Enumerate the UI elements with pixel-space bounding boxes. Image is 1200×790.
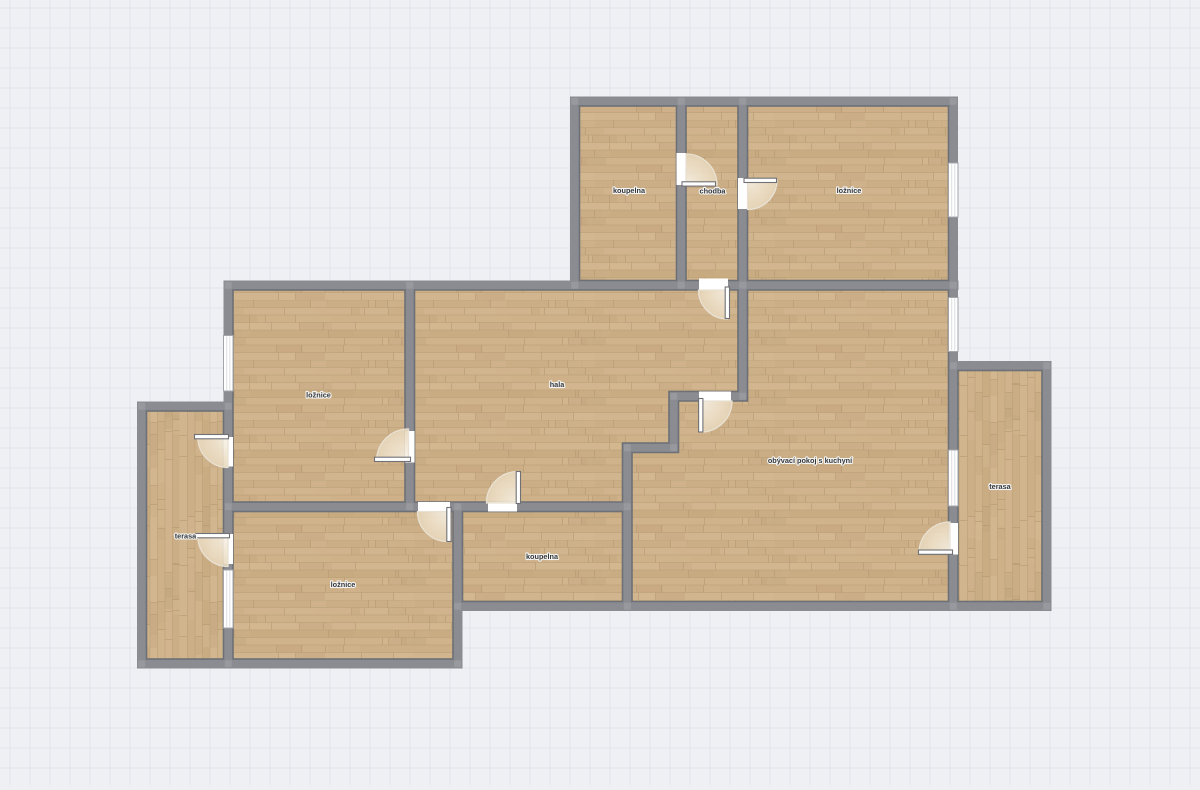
svg-text:koupelna: koupelna bbox=[526, 552, 559, 561]
svg-text:ložnice: ložnice bbox=[331, 580, 356, 589]
svg-text:koupelna: koupelna bbox=[613, 186, 646, 195]
svg-text:ložnice: ložnice bbox=[306, 391, 331, 400]
svg-text:hala: hala bbox=[550, 380, 566, 389]
svg-text:terasa: terasa bbox=[989, 482, 1011, 491]
svg-text:terasa: terasa bbox=[175, 532, 197, 541]
svg-text:ložnice: ložnice bbox=[837, 186, 862, 195]
svg-text:chodba: chodba bbox=[700, 187, 727, 196]
svg-text:obývací pokoj s kuchyní: obývací pokoj s kuchyní bbox=[768, 456, 853, 465]
